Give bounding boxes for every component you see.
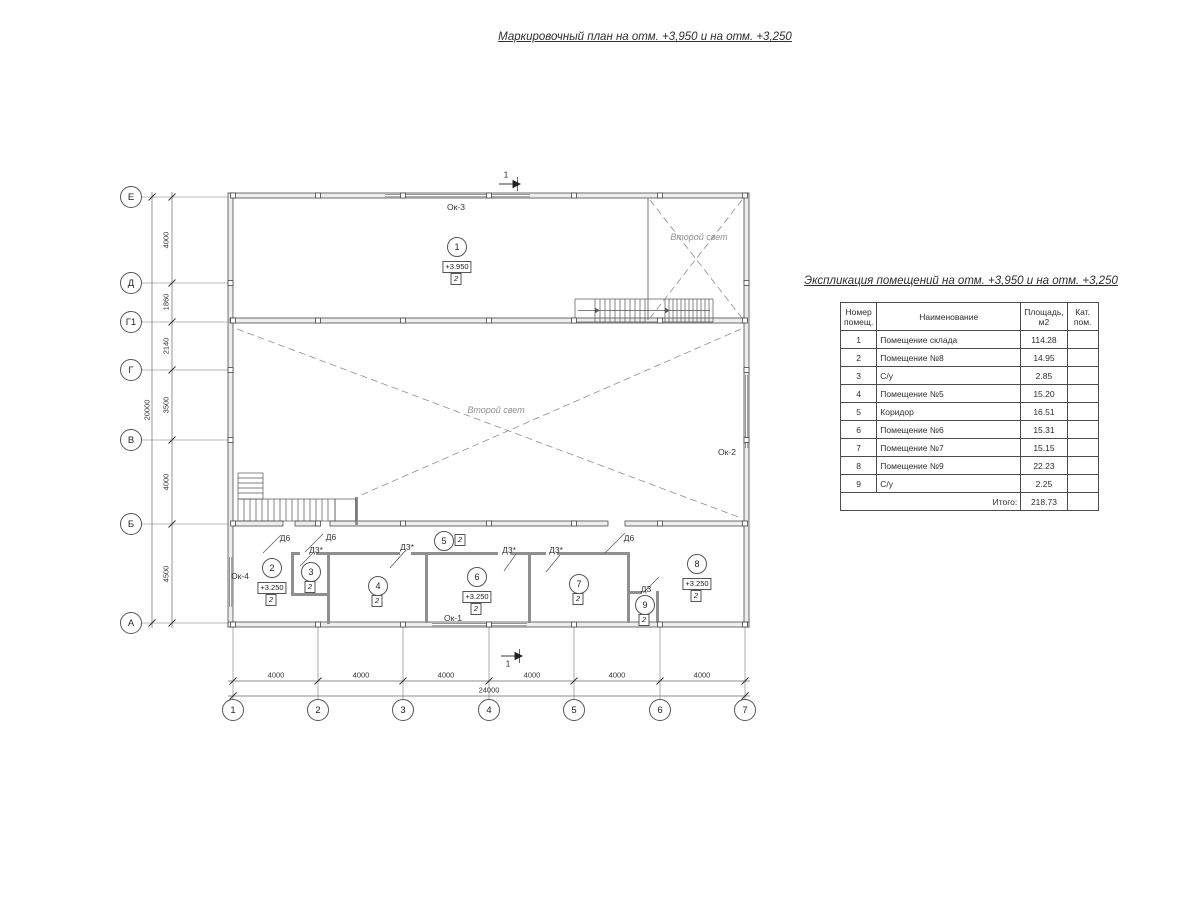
door-label-d3star: Д3* [309, 545, 323, 555]
table-row: 1Помещение склада114.28 [841, 331, 1099, 349]
dimension-left: 4000 [162, 232, 171, 249]
schedule-total-row: Итого: 218.73 [841, 493, 1099, 511]
room-table-body: 1Помещение склада114.282Помещение №814.9… [841, 331, 1099, 493]
room-category-7: 2 [573, 593, 584, 605]
window-label-ok1: Ок-1 [444, 613, 462, 623]
door-label-d6: Д6 [326, 532, 336, 542]
dimension-left: 4000 [162, 474, 171, 491]
room-category-3: 2 [305, 581, 316, 593]
room-elevation-8: +3.250 [682, 578, 711, 590]
dimension-bottom: 4000 [609, 671, 626, 680]
drawing-sheet: { "plan": { "title": "Маркировочный план… [0, 0, 1200, 900]
room-number-9: 9 [635, 595, 655, 615]
window-label-ok4: Ок-4 [231, 571, 249, 581]
room-category-8: 2 [691, 590, 702, 602]
table-row: 4Помещение №515.20 [841, 385, 1099, 403]
room-category-6: 2 [471, 603, 482, 615]
door-label-d3star: Д3* [549, 545, 563, 555]
stair-lower [238, 473, 356, 521]
total-value: 218.73 [1021, 493, 1067, 511]
axis-bubble-Б: Б [120, 513, 142, 535]
axis-bubble-7: 7 [734, 699, 756, 721]
axis-bubble-4: 4 [478, 699, 500, 721]
room-number-4: 4 [368, 576, 388, 596]
col-header: Кат. пом. [1067, 303, 1098, 331]
room-schedule-table: Номер помещ.НаименованиеПлощадь, м2Кат. … [840, 302, 1099, 511]
window-ok1 [432, 623, 527, 627]
axis-bubble-Д: Д [120, 272, 142, 294]
col-header: Номер помещ. [841, 303, 877, 331]
room-number-5: 5 [434, 531, 454, 551]
room-number-2: 2 [262, 558, 282, 578]
col-header: Наименование [877, 303, 1021, 331]
axis-bubble-1: 1 [222, 699, 244, 721]
dimension-bottom: 4000 [353, 671, 370, 680]
section-mark-label: 1 [506, 660, 510, 669]
door-label-d3star: Д3* [400, 542, 414, 552]
door-label-d6: Д6 [280, 533, 290, 543]
room-category-2: 2 [266, 594, 277, 606]
room-elevation-6: +3.250 [462, 591, 491, 603]
room-category-1: 2 [451, 273, 462, 285]
dimension-bottom: 4000 [524, 671, 541, 680]
room-number-3: 3 [301, 562, 321, 582]
second-light-label: Второй свет [467, 405, 524, 415]
table-row: 6Помещение №615.31 [841, 421, 1099, 439]
axis-bubble-А: А [120, 612, 142, 634]
axis-bubble-2: 2 [307, 699, 329, 721]
room-category-4: 2 [372, 595, 383, 607]
table-row: 5Коридор16.51 [841, 403, 1099, 421]
dimension-left: 4500 [162, 566, 171, 583]
sheet-title: Маркировочный план на отм. +3,950 и на о… [498, 31, 792, 43]
window-ok2 [745, 375, 749, 448]
dimension-left: 2140 [162, 338, 171, 355]
dimension-left: 1860 [162, 294, 171, 311]
door-label-d3: Д3 [641, 584, 651, 594]
section-mark-label: 1 [504, 171, 508, 180]
table-row: 2Помещение №814.95 [841, 349, 1099, 367]
room-category-5: 2 [455, 534, 466, 546]
axis-bubble-Е: Е [120, 186, 142, 208]
room-elevation-2: +3.250 [257, 582, 286, 594]
axis-bubble-Г1: Г1 [120, 311, 142, 333]
second-light-label: Второй свет [670, 232, 727, 242]
table-row: 7Помещение №715.15 [841, 439, 1099, 457]
axis-bubble-Г: Г [120, 359, 142, 381]
room-number-1: 1 [447, 237, 467, 257]
dimension-bottom-total: 24000 [479, 686, 500, 695]
table-row: 8Помещение №922.23 [841, 457, 1099, 475]
window-ok3 [385, 194, 530, 198]
room-category-9: 2 [639, 614, 650, 626]
schedule-header-row: Номер помещ.НаименованиеПлощадь, м2Кат. … [841, 303, 1099, 331]
col-header: Площадь, м2 [1021, 303, 1067, 331]
door-label-d3star: Д3* [502, 545, 516, 555]
schedule-title: Экспликация помещений на отм. +3,950 и н… [804, 275, 1118, 287]
table-row: 3С/у2.85 [841, 367, 1099, 385]
total-label: Итого: [841, 493, 1021, 511]
axis-bubble-5: 5 [563, 699, 585, 721]
axis-bubble-3: 3 [392, 699, 414, 721]
dimension-bottom: 4000 [694, 671, 711, 680]
window-label-ok3: Ок-3 [447, 202, 465, 212]
axis-bubble-6: 6 [649, 699, 671, 721]
room-number-6: 6 [467, 567, 487, 587]
axis-bubble-В: В [120, 429, 142, 451]
dimension-left-total: 20000 [143, 400, 152, 421]
door-label-d6: Д6 [624, 533, 634, 543]
window-ok4 [229, 557, 233, 607]
window-label-ok2: Ок-2 [718, 447, 736, 457]
room-elevation-1: +3.950 [442, 261, 471, 273]
dimension-bottom: 4000 [438, 671, 455, 680]
dimension-left: 3500 [162, 397, 171, 414]
table-row: 9С/у2.25 [841, 475, 1099, 493]
room-number-7: 7 [569, 574, 589, 594]
dimension-bottom: 4000 [268, 671, 285, 680]
room-number-8: 8 [687, 554, 707, 574]
